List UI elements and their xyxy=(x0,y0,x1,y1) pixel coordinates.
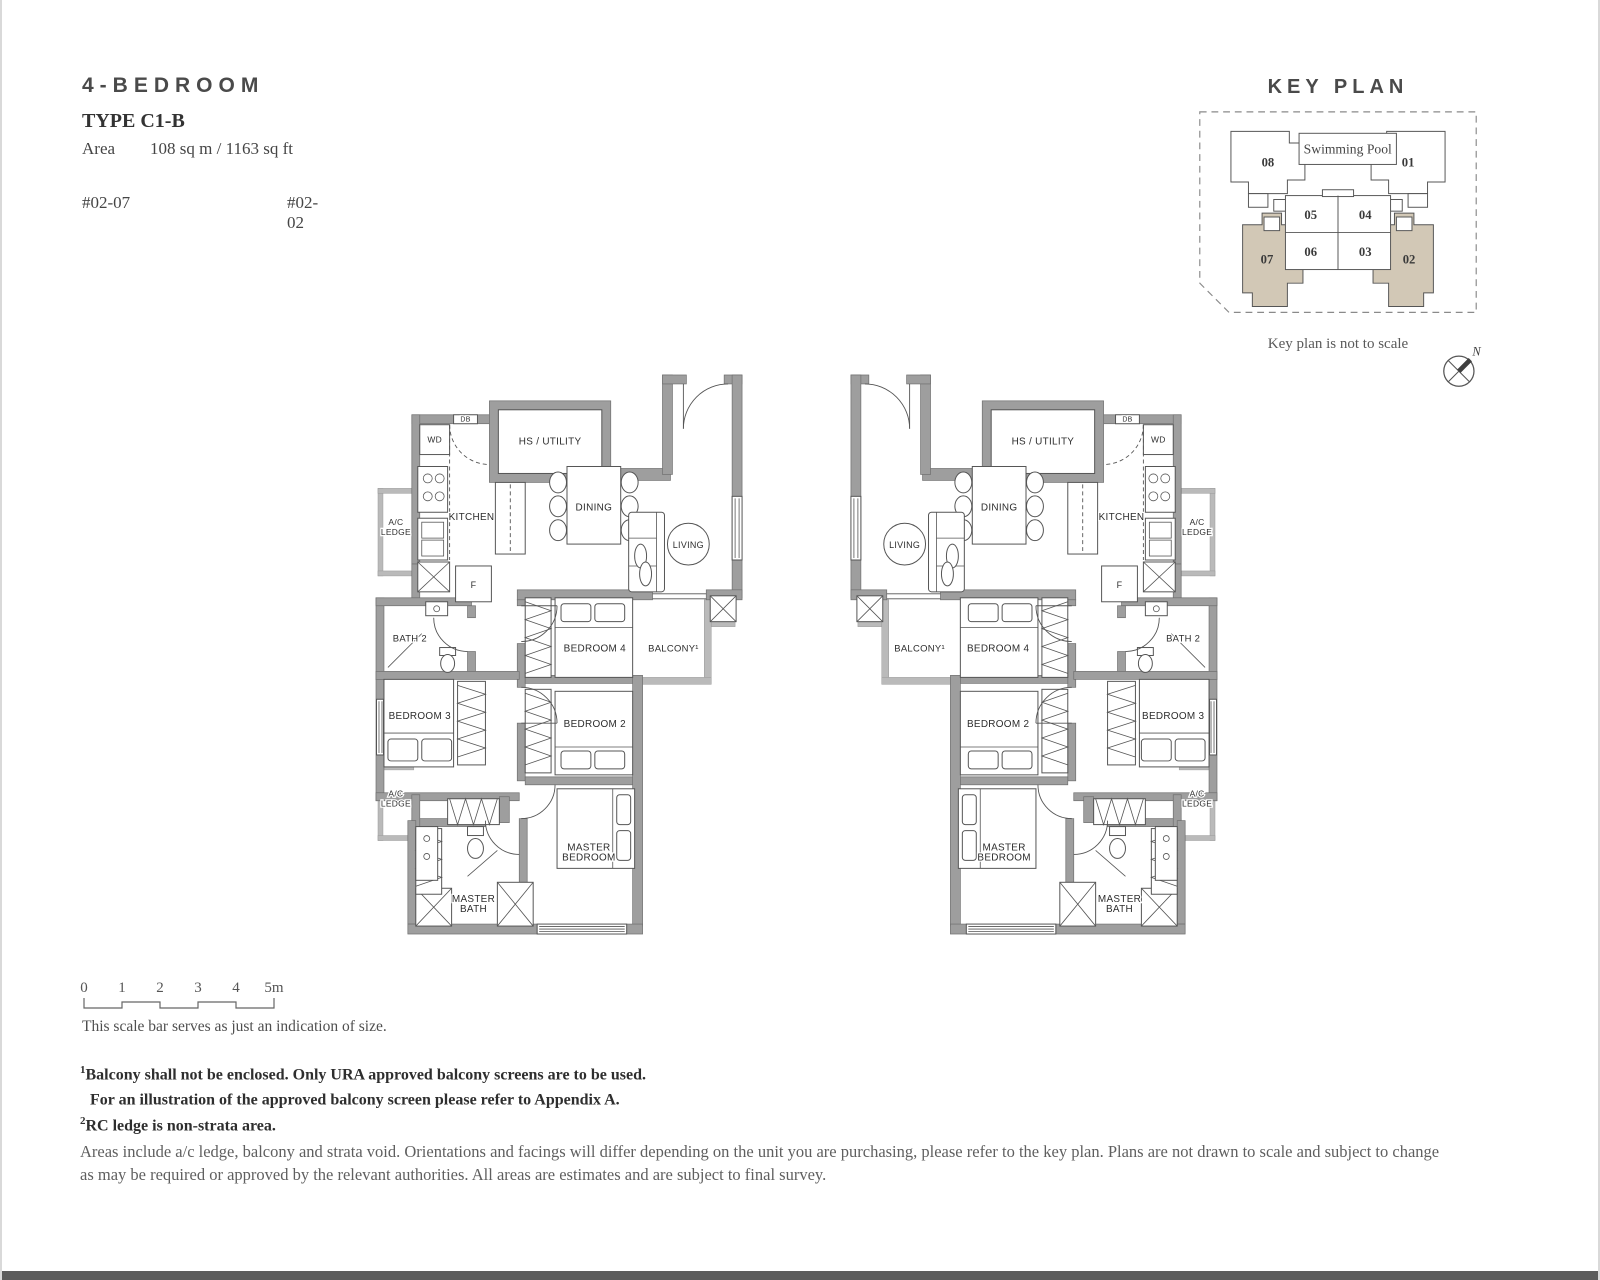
scale-bar-ticks: 012345m xyxy=(80,980,284,996)
footnote-2-text: For an illustration of the approved balc… xyxy=(90,1092,620,1109)
unit-08: 08 xyxy=(1262,155,1275,169)
scale-bar-caption: This scale bar serves as just an indicat… xyxy=(82,1018,387,1036)
room-label: A/C xyxy=(1190,517,1205,527)
scale-tick-label: 0 xyxy=(80,980,88,996)
room-label: KITCHEN xyxy=(449,512,495,523)
floor-plan-left: DBWDHS / UTILITYKITCHENDININGLIVINGA/CLE… xyxy=(372,371,760,938)
scale-tick-label: 2 xyxy=(156,980,164,996)
room-label: HS / UTILITY xyxy=(519,437,582,448)
room-label: BATH xyxy=(460,904,487,915)
unit-01: 01 xyxy=(1402,155,1415,169)
footnote-3: 2RC ledge is non-strata area. xyxy=(80,1111,646,1136)
unit-06: 06 xyxy=(1304,245,1317,259)
room-label: BATH xyxy=(1106,904,1133,915)
room-label: LIVING xyxy=(889,540,920,550)
room-label: HS / UTILITY xyxy=(1012,437,1075,448)
room-label: LEDGE xyxy=(381,527,411,537)
room-label: BALCONY¹ xyxy=(648,644,699,655)
north-label: N xyxy=(1471,345,1481,359)
footnote-1: 1Balcony shall not be enclosed. Only URA… xyxy=(80,1060,646,1085)
room-label: BEDROOM 4 xyxy=(967,644,1029,655)
scale-bar-line xyxy=(84,998,274,1008)
room-label: LEDGE xyxy=(1182,527,1212,537)
key-plan-title: KEY PLAN xyxy=(1192,76,1484,99)
footnote-2: For an illustration of the approved balc… xyxy=(80,1085,646,1110)
brochure-page: 4-BEDROOM TYPE C1-B Area108 sq m / 1163 … xyxy=(0,0,1600,1280)
room-label: LEDGE xyxy=(381,799,411,809)
room-label: BATH 2 xyxy=(393,634,427,645)
swimming-pool-label: Swimming Pool xyxy=(1304,142,1392,157)
room-label: LEDGE xyxy=(1182,799,1212,809)
room-label: KITCHEN xyxy=(1099,512,1145,523)
unit-05: 05 xyxy=(1304,208,1317,222)
room-label: BEDROOM 2 xyxy=(564,719,626,730)
unit-number-left: #02-07 xyxy=(82,193,130,212)
room-label: BEDROOM 4 xyxy=(564,644,626,655)
area-value: 108 sq m / 1163 sq ft xyxy=(150,139,293,158)
unit-07: 07 xyxy=(1261,253,1274,267)
room-label: BEDROOM 3 xyxy=(389,711,451,722)
disclaimer: Areas include a/c ledge, balcony and str… xyxy=(80,1140,1442,1186)
room-label: BATH 2 xyxy=(1166,634,1200,645)
room-label: A/C xyxy=(1190,789,1205,799)
room-label: BEDROOM 3 xyxy=(1142,711,1204,722)
key-plan: Swimming Pool 08 01 05 04 06 03 07 02 xyxy=(1192,106,1484,328)
room-label: A/C xyxy=(388,789,403,799)
unit-numbers: #02-07#02-02 xyxy=(82,193,130,213)
room-label: DINING xyxy=(981,502,1018,513)
room-label: DINING xyxy=(576,502,613,513)
floor-plan-right: DBWDHS / UTILITYKITCHENDININGLIVINGA/CLE… xyxy=(833,371,1221,938)
type-label: TYPE C1-B xyxy=(82,110,185,133)
room-label: BEDROOM 2 xyxy=(967,719,1029,730)
scale-tick-label: 4 xyxy=(232,980,240,996)
page-bottom-rule xyxy=(2,1271,1598,1280)
footnote-1-text: Balcony shall not be enclosed. Only URA … xyxy=(86,1066,647,1083)
compass-icon: N xyxy=(1438,342,1486,392)
room-label: A/C xyxy=(388,517,403,527)
room-label: BEDROOM xyxy=(562,852,615,863)
room-label: WD xyxy=(427,435,442,445)
footnote-3-text: RC ledge is non-strata area. xyxy=(86,1117,276,1134)
scale-tick-label: 1 xyxy=(118,980,126,996)
room-label: DB xyxy=(1122,417,1132,424)
scale-bar: 012345m xyxy=(78,980,290,1014)
scale-tick-label: 5m xyxy=(264,980,284,996)
room-label: WD xyxy=(1151,435,1166,445)
room-label: BALCONY¹ xyxy=(894,644,945,655)
area-row: Area108 sq m / 1163 sq ft xyxy=(82,139,293,159)
scale-tick-label: 3 xyxy=(194,980,202,996)
unit-03: 03 xyxy=(1359,245,1372,259)
unit-number-right: #02-02 xyxy=(287,193,318,233)
room-label: F xyxy=(1117,580,1123,590)
unit-04: 04 xyxy=(1359,208,1372,222)
room-label: DB xyxy=(460,417,470,424)
room-label: LIVING xyxy=(673,540,704,550)
room-label: BEDROOM xyxy=(977,852,1030,863)
area-label: Area xyxy=(82,139,115,158)
page-title: 4-BEDROOM xyxy=(82,74,264,98)
footnotes: 1Balcony shall not be enclosed. Only URA… xyxy=(80,1060,646,1136)
room-label: F xyxy=(471,580,477,590)
unit-02: 02 xyxy=(1403,253,1416,267)
